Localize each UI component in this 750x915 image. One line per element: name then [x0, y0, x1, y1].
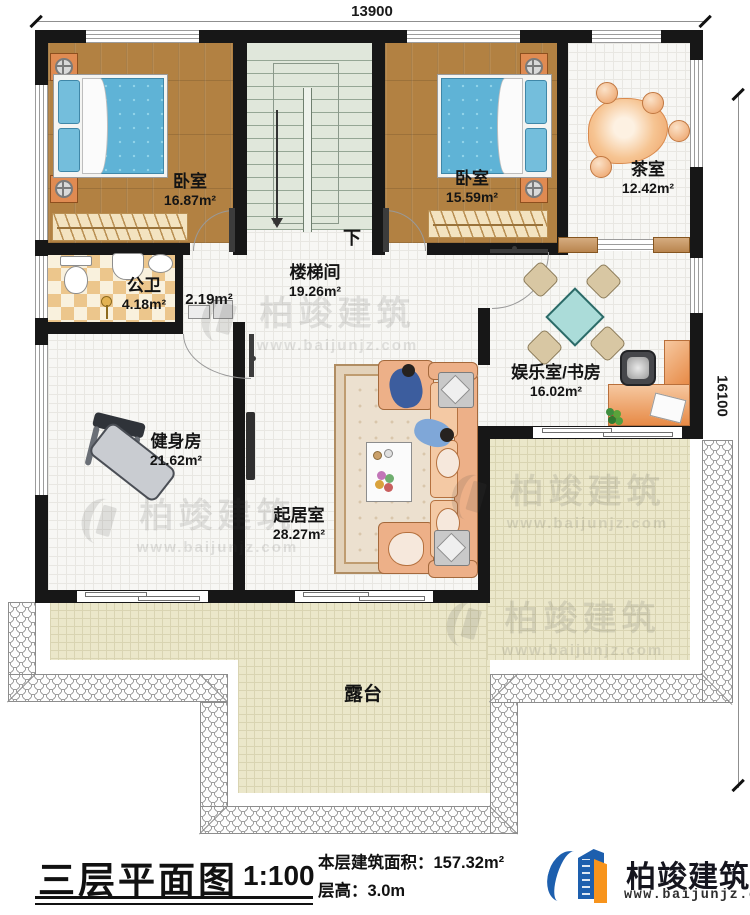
- cabinet: [558, 237, 598, 253]
- window: [35, 345, 48, 495]
- room-label-gym: 健身房 21.62m²: [150, 432, 202, 469]
- pillow: [58, 80, 80, 124]
- wall-tea-left: [557, 30, 568, 253]
- watermark-logo-icon: [446, 470, 500, 526]
- sofa-cushion: [388, 532, 424, 566]
- stool: [642, 92, 664, 114]
- watermark-logo-icon: [76, 494, 130, 550]
- watermark-site: www.baijunjz.com: [137, 539, 298, 556]
- watermark-name: 柏竣建筑: [502, 591, 663, 640]
- floor-area-value: 157.32m²: [434, 854, 505, 872]
- room-area: 4.18m²: [122, 296, 166, 313]
- stair-stringer: [303, 88, 312, 232]
- stool: [596, 82, 618, 104]
- watermark-name: 柏竣建筑: [257, 286, 418, 335]
- floor-area-row: 本层建筑面积：157.32m²: [318, 849, 504, 873]
- decor-dot: [373, 451, 382, 460]
- wardrobe: [52, 213, 188, 241]
- room-area: 15.59m²: [446, 189, 498, 206]
- floor-height-label: 层高：: [318, 882, 368, 900]
- stair-down-label: 下: [343, 228, 361, 250]
- window: [690, 258, 703, 313]
- room-name: 娱乐室/书房: [511, 363, 601, 383]
- cabinet: [653, 237, 690, 253]
- blanket: [497, 78, 523, 174]
- watermark: 柏竣建筑 www.baijunjz.com: [447, 591, 663, 659]
- title-underline: [35, 903, 313, 905]
- logo-building-orange: [594, 859, 607, 903]
- room-label-entertainment: 娱乐室/书房 16.02m²: [511, 363, 601, 400]
- blanket: [82, 78, 108, 174]
- stair-direction-line: [276, 110, 278, 218]
- room-area: 16.87m²: [164, 192, 216, 209]
- roof-edge: [8, 674, 228, 702]
- brand-website: www.baijunjz.com: [624, 888, 750, 903]
- room-name: 卧室: [164, 172, 216, 192]
- roof-edge: [490, 674, 733, 703]
- watermark: 柏竣建筑 www.baijunjz.com: [202, 286, 418, 354]
- watermark-site: www.baijunjz.com: [507, 515, 668, 532]
- wall-bath-closet: [175, 255, 183, 322]
- roof-edge: [200, 806, 518, 834]
- toilet-bowl: [64, 266, 88, 294]
- sliding-door: [295, 591, 433, 602]
- wall-bathroom-bottom: [35, 322, 183, 334]
- room-name: 露台: [344, 684, 382, 707]
- sink: [148, 254, 173, 273]
- plan-scale: 1:100: [243, 860, 315, 892]
- sliding-door: [533, 427, 682, 438]
- window: [35, 85, 48, 240]
- watermark-site: www.baijunjz.com: [257, 337, 418, 354]
- down-text: 下: [343, 228, 361, 250]
- office-chair-seat: [627, 357, 649, 379]
- coffee-table: [366, 442, 412, 502]
- flower-icon: [377, 471, 386, 480]
- window: [35, 256, 48, 318]
- room-area: 21.62m²: [150, 452, 202, 469]
- watermark-name: 柏竣建筑: [507, 464, 668, 513]
- pass-through: [598, 239, 653, 251]
- nightstand: [520, 175, 548, 203]
- room-label-bedroom1: 卧室 16.87m²: [164, 172, 216, 209]
- stair-arrow: [271, 218, 283, 228]
- stool: [590, 156, 612, 178]
- lamp-icon: [525, 180, 543, 198]
- watermark-name: 柏竣建筑: [137, 488, 298, 537]
- floor-height-row: 层高：3.0m: [318, 877, 405, 901]
- lamp-icon: [55, 180, 73, 198]
- window: [690, 60, 703, 167]
- door-knob: [512, 246, 517, 251]
- watermark-site: www.baijunjz.com: [502, 642, 663, 659]
- side-table: [434, 530, 470, 566]
- drain-pipe: [106, 305, 108, 319]
- window: [86, 30, 199, 43]
- watermark: 柏竣建筑 www.baijunjz.com: [82, 488, 298, 556]
- pillow: [525, 128, 547, 172]
- wall-ent-left: [478, 243, 490, 252]
- title-underline: [35, 896, 313, 899]
- person-head: [402, 364, 415, 377]
- door-leaf: [383, 208, 389, 252]
- room-name: 公卫: [122, 276, 166, 296]
- room-name: 楼梯间: [289, 263, 341, 283]
- room-name: 健身房: [150, 432, 202, 452]
- pillow: [58, 128, 80, 172]
- wardrobe: [428, 210, 548, 238]
- door-knob: [251, 356, 256, 361]
- dimension-line-top: [35, 21, 706, 22]
- dimension-line-right: [738, 95, 739, 788]
- dimension-top: 13900: [351, 3, 393, 20]
- stool: [668, 120, 690, 142]
- floor-area-label: 本层建筑面积：: [318, 854, 434, 872]
- room-label-terrace: 露台: [344, 684, 382, 707]
- window: [592, 30, 661, 43]
- room-label-bathroom: 公卫 4.18m²: [122, 276, 166, 313]
- side-table: [438, 372, 474, 408]
- room-name: 茶室: [622, 160, 674, 180]
- plant-icon: [606, 408, 614, 416]
- window: [407, 30, 520, 43]
- person-head: [440, 428, 454, 442]
- floor-height-value: 3.0m: [368, 882, 406, 900]
- floor-plan: 卧室 16.87m² 卧室 15.59m² 茶室 12.42m² 楼梯间 19.…: [0, 0, 750, 915]
- toilet: [60, 256, 92, 266]
- dimension-right: 16100: [714, 375, 731, 417]
- tv: [246, 412, 255, 480]
- pillow: [525, 80, 547, 124]
- room-area: 12.42m²: [622, 180, 674, 197]
- watermark: 柏竣建筑 www.baijunjz.com: [452, 464, 668, 532]
- watermark-logo-icon: [196, 292, 250, 348]
- room-label-tea: 茶室 12.42m²: [622, 160, 674, 197]
- wall-ent-left: [478, 308, 490, 365]
- door-leaf: [490, 249, 548, 253]
- roof-edge: [702, 440, 733, 703]
- desk: [664, 340, 690, 386]
- wall-stair-left: [233, 30, 247, 255]
- door-leaf: [229, 208, 235, 252]
- room-label-bedroom2: 卧室 15.59m²: [446, 169, 498, 206]
- terrace-floor: [50, 602, 238, 660]
- room-name: 卧室: [446, 169, 498, 189]
- room-area: 16.02m²: [511, 383, 601, 400]
- brand-logo-icon: [548, 845, 618, 907]
- decor-dot: [384, 449, 393, 458]
- nightstand: [50, 175, 78, 203]
- watermark-logo-icon: [441, 597, 495, 653]
- sliding-door: [77, 591, 208, 602]
- roof-edge: [490, 702, 518, 834]
